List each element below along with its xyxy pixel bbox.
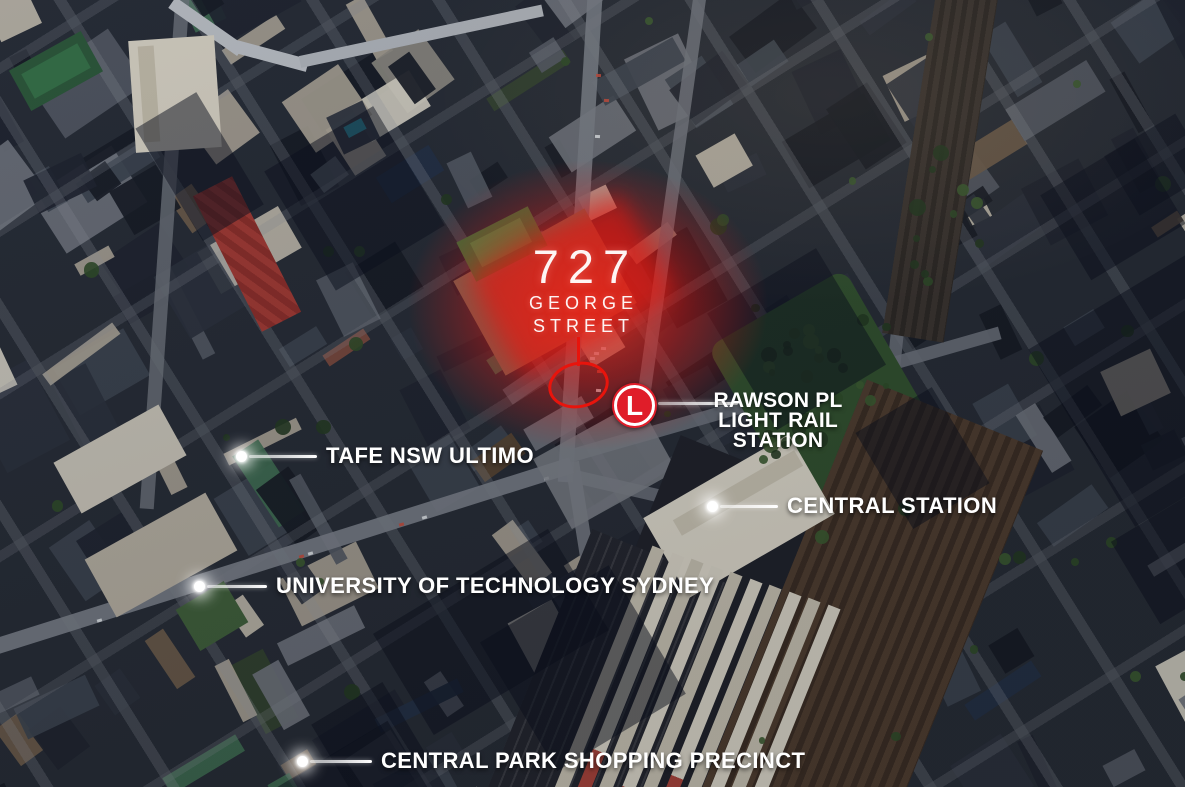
site-street-name-line1: GEORGE xyxy=(511,294,656,313)
site-ellipse-marker xyxy=(544,356,613,414)
central-park-marker-dot xyxy=(297,756,308,767)
uts-leader-line xyxy=(207,585,267,588)
central-park-leader-line xyxy=(310,760,372,763)
landmark-central-station: CENTRAL STATION xyxy=(707,490,997,522)
aerial-map-canvas: 727 GEORGE STREET L RAWSON PL LIGHT RAIL… xyxy=(0,0,1185,787)
site-address-label: 727 GEORGE STREET xyxy=(506,243,656,336)
landmark-university-of-technology-sydney: UNIVERSITY OF TECHNOLOGY SYDNEY xyxy=(194,570,714,602)
tafe-label: TAFE NSW ULTIMO xyxy=(326,443,534,469)
uts-label: UNIVERSITY OF TECHNOLOGY SYDNEY xyxy=(276,573,714,599)
tafe-leader-line xyxy=(249,455,317,458)
light-rail-badge-letter: L xyxy=(626,392,643,420)
uts-marker-dot xyxy=(194,581,205,592)
central-station-leader-line xyxy=(720,505,778,508)
central-station-label: CENTRAL STATION xyxy=(787,493,997,519)
light-rail-station-label-line1: RAWSON PL xyxy=(693,391,863,411)
annotations-layer: 727 GEORGE STREET L RAWSON PL LIGHT RAIL… xyxy=(0,0,1185,787)
landmark-central-park-shopping-precinct: CENTRAL PARK SHOPPING PRECINCT xyxy=(297,745,805,777)
light-rail-station-label-line2: LIGHT RAIL STATION xyxy=(693,411,863,451)
central-park-label: CENTRAL PARK SHOPPING PRECINCT xyxy=(381,748,805,774)
central-station-marker-dot xyxy=(707,501,718,512)
site-street-name-line2: STREET xyxy=(511,317,656,336)
landmark-tafe-nsw-ultimo: TAFE NSW ULTIMO xyxy=(236,440,534,472)
tafe-marker-dot xyxy=(236,451,247,462)
light-rail-badge-icon: L xyxy=(612,383,657,428)
site-street-number: 727 xyxy=(515,243,656,290)
light-rail-station-label: RAWSON PL LIGHT RAIL STATION xyxy=(693,391,863,451)
